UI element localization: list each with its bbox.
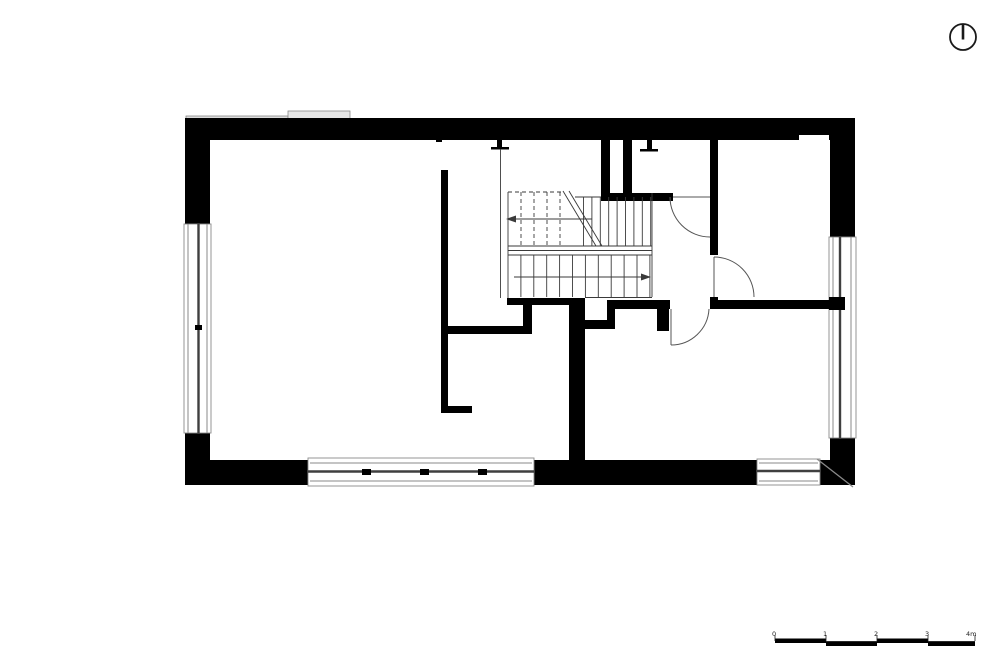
scale-label-2: 2: [874, 630, 878, 638]
door-closet: [670, 197, 710, 237]
scale-label-3: 3: [925, 630, 929, 638]
shaft-bottom-wall: [601, 193, 673, 201]
shaft-wall-right: [623, 140, 632, 196]
door-top-right-room: [714, 257, 754, 297]
door-bottom-right-room: [671, 309, 709, 345]
wall-left-upper: [185, 118, 210, 224]
floor-plan-drawing: 0 1 2 3 4m: [0, 0, 1000, 666]
scale-bar: 0 1 2 3 4m: [772, 630, 976, 646]
floor-plan-page: 0 1 2 3 4m: [0, 0, 1000, 666]
hall-room-divider-stub: [710, 297, 718, 309]
scale-segment: [826, 642, 877, 647]
wall-junction-cap: [829, 297, 845, 310]
stair-arrow-up: [506, 216, 592, 223]
stair-break-line: [563, 191, 602, 246]
corridor-wall-upper: [607, 300, 670, 309]
window-bottom-large: [308, 458, 534, 486]
freestanding-partial-wall: [441, 170, 448, 413]
wall-top-niche: [799, 135, 829, 143]
window-mullion-mark: [195, 325, 202, 330]
scale-label-1: 1: [823, 630, 827, 638]
living-room-top-wall: [442, 326, 532, 334]
window-mullion-mark: [420, 469, 429, 475]
scale-label-0: 0: [772, 630, 776, 638]
stair-right-flight: [584, 197, 651, 246]
wall-tick-mark: [436, 136, 442, 142]
column-icon: [491, 147, 509, 150]
window-left: [184, 224, 211, 433]
shaft-wall-left: [601, 140, 610, 196]
window-right: [829, 237, 856, 438]
door-swing-arc: [714, 257, 754, 297]
door-swing-arc: [671, 309, 709, 345]
corridor-wall-lower: [580, 320, 615, 329]
bottom-rooms-divider-wall: [569, 303, 585, 460]
stair-landing-lines: [508, 246, 652, 255]
interior-walls: [436, 136, 830, 460]
column-symbols: [491, 140, 658, 152]
scale-segment: [775, 639, 826, 644]
column-icon: [647, 140, 652, 149]
window-mullion-mark: [362, 469, 371, 475]
right-rooms-divider-wall: [718, 300, 830, 309]
stair-arrow-down: [514, 274, 651, 281]
window-mullion-mark: [478, 469, 487, 475]
partial-wall-foot: [441, 406, 472, 413]
north-indicator-icon: [950, 24, 976, 50]
scale-segment: [877, 639, 928, 644]
under-stair-stub: [523, 303, 532, 329]
hall-room-divider-upper: [710, 140, 718, 255]
wall-right-upper: [830, 118, 855, 237]
column-icon: [640, 149, 658, 152]
wall-top: [185, 118, 855, 140]
stair-lower-flight: [521, 255, 650, 297]
scale-label-4m: 4m: [966, 630, 976, 638]
scale-segment: [928, 642, 975, 647]
door-swing-arc: [670, 197, 710, 237]
